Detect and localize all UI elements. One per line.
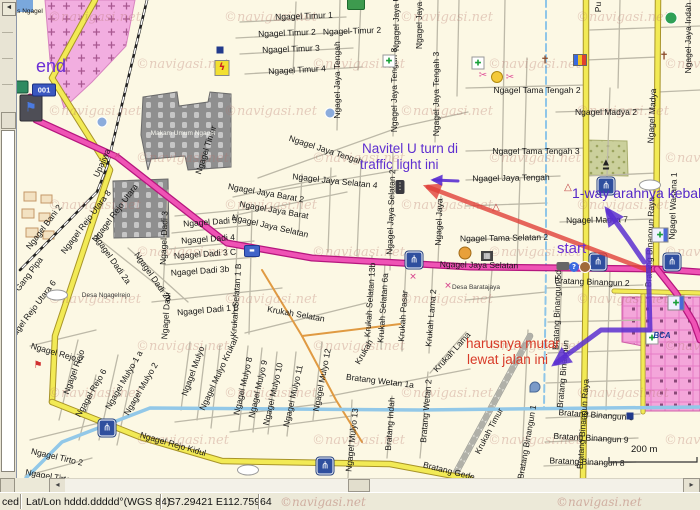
panel-listbox[interactable] <box>1 130 15 472</box>
map-canvas[interactable]: ©navigasi.net©navigasi.net©navigasi.net©… <box>0 0 700 478</box>
scrollbar-track[interactable] <box>65 478 684 492</box>
building-area <box>22 209 34 218</box>
watermark-text: ©navigasi.net <box>556 495 642 509</box>
cursor-position: S7.29421 E112.75964 <box>168 496 272 508</box>
map-base-svg <box>0 0 700 478</box>
status-bar: ced Lat/Lon hddd.ddddd°(WGS 84) S7.29421… <box>0 492 700 510</box>
scroll-right-button[interactable]: ▸ <box>683 478 700 493</box>
building-area <box>26 228 38 237</box>
horizontal-scrollbar[interactable]: ◂ ▸ <box>0 478 700 492</box>
panel-corner-box <box>0 478 15 493</box>
side-panel[interactable]: ◄ <box>0 0 17 478</box>
status-left-fragment: ced <box>2 496 19 508</box>
binangun-raya-yellow <box>583 268 586 478</box>
status-separator <box>258 494 259 509</box>
app-window: { "panel": {"collapse_icon": "◄"}, "scro… <box>0 0 700 510</box>
status-separator <box>20 494 21 509</box>
building-area <box>24 192 36 201</box>
panel-divider <box>2 32 13 33</box>
scroll-left-button[interactable]: ◂ <box>49 478 66 493</box>
building-area <box>41 195 52 203</box>
panel-divider <box>2 58 13 59</box>
status-separator <box>160 494 161 509</box>
park-area <box>585 140 628 176</box>
water-corner-area <box>17 0 33 12</box>
panel-divider <box>2 84 13 85</box>
madya-yellow-east <box>656 0 658 269</box>
building-area <box>39 213 50 221</box>
watermark-text: ©navigasi.net <box>280 495 366 509</box>
panel-mini-button[interactable] <box>1 112 16 129</box>
market-yellow-h <box>614 291 700 293</box>
scrollbar-thumb[interactable] <box>348 479 370 492</box>
panel-collapse-button[interactable]: ◄ <box>2 2 16 16</box>
coordinate-format: Lat/Lon hddd.ddddd°(WGS 84) <box>26 496 170 508</box>
